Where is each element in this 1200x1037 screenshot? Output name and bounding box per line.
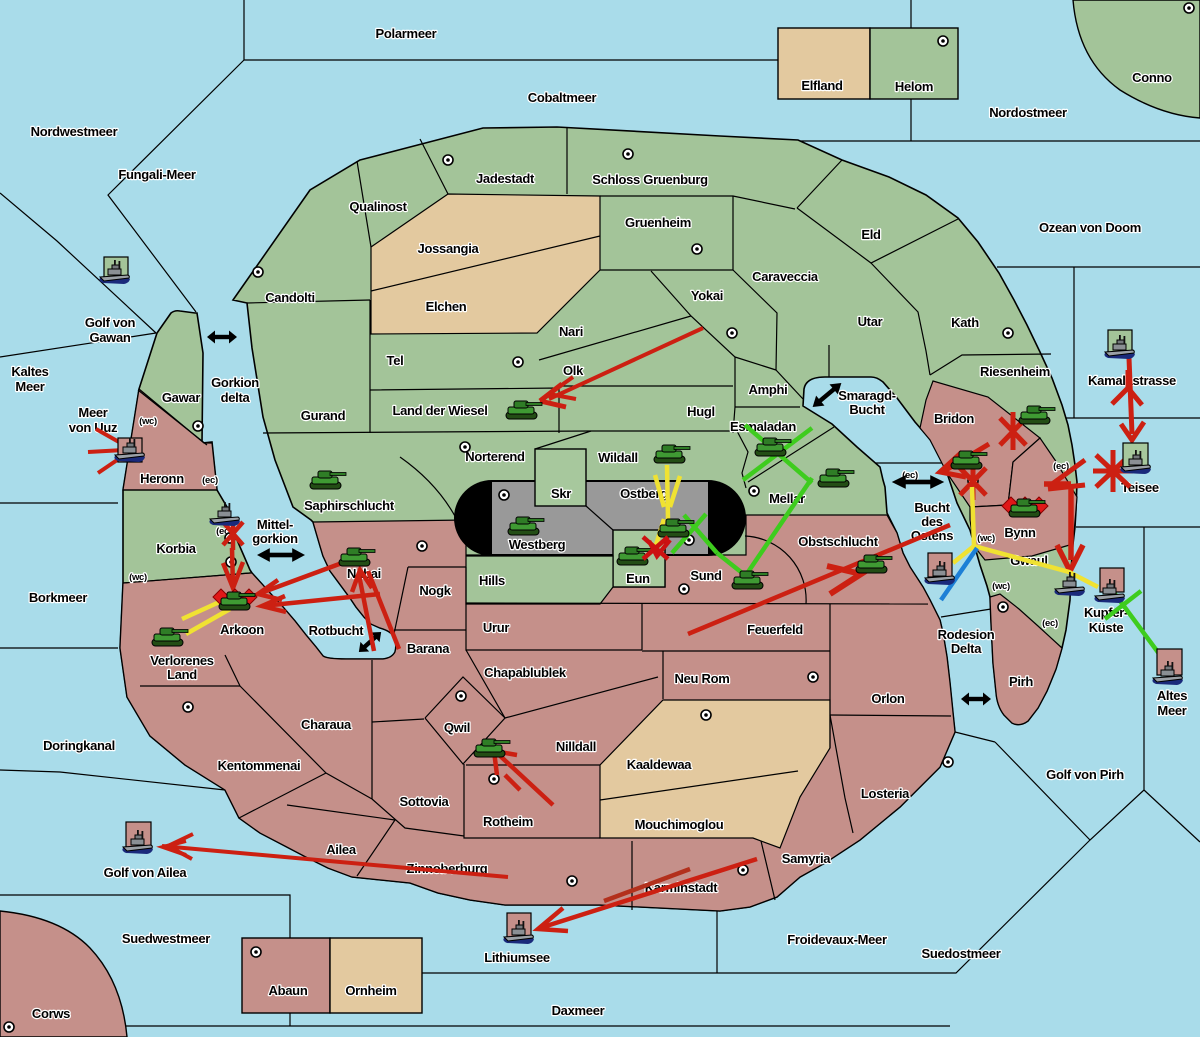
svg-text:Bucht: Bucht <box>849 402 885 417</box>
svg-text:Riesenheim: Riesenheim <box>980 364 1050 379</box>
svg-text:Fungali-Meer: Fungali-Meer <box>118 167 196 182</box>
svg-text:Corws: Corws <box>32 1006 70 1021</box>
svg-text:Eld: Eld <box>861 227 881 242</box>
svg-text:Lithiumsee: Lithiumsee <box>484 950 550 965</box>
svg-text:Korbia: Korbia <box>156 541 196 556</box>
svg-text:Sottovia: Sottovia <box>400 794 450 809</box>
svg-text:Daxmeer: Daxmeer <box>552 1003 605 1018</box>
svg-text:Feuerfeld: Feuerfeld <box>747 622 803 637</box>
svg-text:(wc): (wc) <box>129 572 147 583</box>
svg-text:delta: delta <box>221 390 251 405</box>
svg-text:Amphi: Amphi <box>749 382 788 397</box>
svg-text:Yokai: Yokai <box>691 288 723 303</box>
svg-text:Delta: Delta <box>951 641 982 656</box>
svg-text:(wc): (wc) <box>977 533 995 544</box>
svg-text:Gruenheim: Gruenheim <box>625 215 691 230</box>
svg-text:Bridon: Bridon <box>934 411 974 426</box>
svg-text:Gawan: Gawan <box>89 330 130 345</box>
svg-text:Hugl: Hugl <box>687 404 715 419</box>
svg-text:Candolti: Candolti <box>265 290 315 305</box>
svg-text:Nordostmeer: Nordostmeer <box>989 105 1067 120</box>
svg-text:Golf von Pirh: Golf von Pirh <box>1046 767 1124 782</box>
svg-text:Ornheim: Ornheim <box>345 983 396 998</box>
svg-text:Meer: Meer <box>1157 703 1186 718</box>
svg-text:Kath: Kath <box>951 315 979 330</box>
svg-text:des: des <box>921 514 943 529</box>
svg-text:Gorkion: Gorkion <box>211 375 259 390</box>
svg-text:Arkoon: Arkoon <box>220 622 264 637</box>
svg-text:Conno: Conno <box>1132 70 1172 85</box>
svg-text:Mittel-: Mittel- <box>257 517 293 532</box>
svg-text:Golf von: Golf von <box>85 315 136 330</box>
svg-text:Mouchimoglou: Mouchimoglou <box>635 817 724 832</box>
svg-text:Eun: Eun <box>626 571 650 586</box>
svg-text:Froidevaux-Meer: Froidevaux-Meer <box>787 932 887 947</box>
svg-text:Chapablublek: Chapablublek <box>484 665 567 680</box>
svg-text:Golf von Ailea: Golf von Ailea <box>104 865 188 880</box>
svg-text:(wc): (wc) <box>992 581 1010 592</box>
svg-text:Losteria: Losteria <box>861 786 910 801</box>
svg-text:Sund: Sund <box>690 568 722 583</box>
svg-text:Wildall: Wildall <box>598 450 638 465</box>
svg-text:Kaltes: Kaltes <box>11 364 48 379</box>
svg-text:von Uuz: von Uuz <box>69 420 118 435</box>
svg-text:Obstschlucht: Obstschlucht <box>798 534 878 549</box>
svg-text:Neu Rom: Neu Rom <box>675 671 730 686</box>
svg-text:Tel: Tel <box>387 353 404 368</box>
svg-text:Barana: Barana <box>407 641 450 656</box>
svg-text:Ailea: Ailea <box>326 842 357 857</box>
svg-text:Gurand: Gurand <box>301 408 346 423</box>
svg-text:Land: Land <box>167 667 197 682</box>
svg-text:(ec): (ec) <box>202 475 218 486</box>
svg-text:(ec): (ec) <box>1042 618 1058 629</box>
svg-text:Jadestadt: Jadestadt <box>476 171 535 186</box>
svg-text:Hills: Hills <box>479 573 505 588</box>
svg-text:Helom: Helom <box>895 79 933 94</box>
svg-text:Suedostmeer: Suedostmeer <box>921 946 1000 961</box>
svg-text:Rodesion: Rodesion <box>938 627 995 642</box>
svg-text:Norterend: Norterend <box>465 449 525 464</box>
svg-text:Land der Wiesel: Land der Wiesel <box>392 403 487 418</box>
svg-text:Qwil: Qwil <box>444 720 470 735</box>
svg-text:Kaaldewaa: Kaaldewaa <box>627 757 693 772</box>
svg-text:Altes: Altes <box>1157 688 1187 703</box>
svg-text:Esmaladan: Esmaladan <box>730 419 796 434</box>
svg-text:Elchen: Elchen <box>426 299 467 314</box>
svg-text:Olk: Olk <box>563 363 584 378</box>
svg-text:Schloss Gruenburg: Schloss Gruenburg <box>592 172 708 187</box>
svg-text:Jossangia: Jossangia <box>418 241 480 256</box>
svg-text:Utar: Utar <box>858 314 883 329</box>
svg-text:Nordwestmeer: Nordwestmeer <box>31 124 118 139</box>
svg-text:Samyria: Samyria <box>782 851 832 866</box>
svg-text:Meer: Meer <box>15 379 44 394</box>
svg-text:Doringkanal: Doringkanal <box>43 738 115 753</box>
svg-text:Smaragd-: Smaragd- <box>838 388 896 403</box>
svg-text:Nari: Nari <box>559 324 583 339</box>
svg-text:Skr: Skr <box>551 486 571 501</box>
svg-text:Bynn: Bynn <box>1004 525 1036 540</box>
svg-text:Charaua: Charaua <box>301 717 352 732</box>
svg-text:Nilldall: Nilldall <box>556 739 596 754</box>
svg-text:Meer: Meer <box>78 405 107 420</box>
svg-text:Urur: Urur <box>483 620 509 635</box>
svg-text:Suedwestmeer: Suedwestmeer <box>122 931 210 946</box>
svg-text:Heronn: Heronn <box>140 471 184 486</box>
svg-text:Borkmeer: Borkmeer <box>29 590 88 605</box>
svg-text:Küste: Küste <box>1089 620 1124 635</box>
svg-text:Ozean von Doom: Ozean von Doom <box>1039 220 1141 235</box>
svg-text:Rotbucht: Rotbucht <box>309 623 365 638</box>
svg-text:Saphirschlucht: Saphirschlucht <box>304 498 395 513</box>
svg-text:Caraveccia: Caraveccia <box>752 269 819 284</box>
svg-text:gorkion: gorkion <box>252 531 298 546</box>
svg-text:Westberg: Westberg <box>509 537 566 552</box>
svg-text:Abaun: Abaun <box>269 983 308 998</box>
svg-text:Polarmeer: Polarmeer <box>376 26 437 41</box>
svg-text:Bucht: Bucht <box>914 500 950 515</box>
svg-text:Kentommenai: Kentommenai <box>218 758 301 773</box>
svg-text:Gawar: Gawar <box>162 390 200 405</box>
svg-text:Qualinost: Qualinost <box>349 199 407 214</box>
svg-text:Verlorenes: Verlorenes <box>150 653 214 668</box>
svg-text:Pirh: Pirh <box>1009 674 1033 689</box>
svg-text:Cobaltmeer: Cobaltmeer <box>528 90 597 105</box>
svg-text:Nogk: Nogk <box>419 583 451 598</box>
svg-text:Rotheim: Rotheim <box>483 814 533 829</box>
svg-text:(wc): (wc) <box>139 416 157 427</box>
svg-text:Elfland: Elfland <box>801 78 843 93</box>
svg-text:Orlon: Orlon <box>871 691 905 706</box>
